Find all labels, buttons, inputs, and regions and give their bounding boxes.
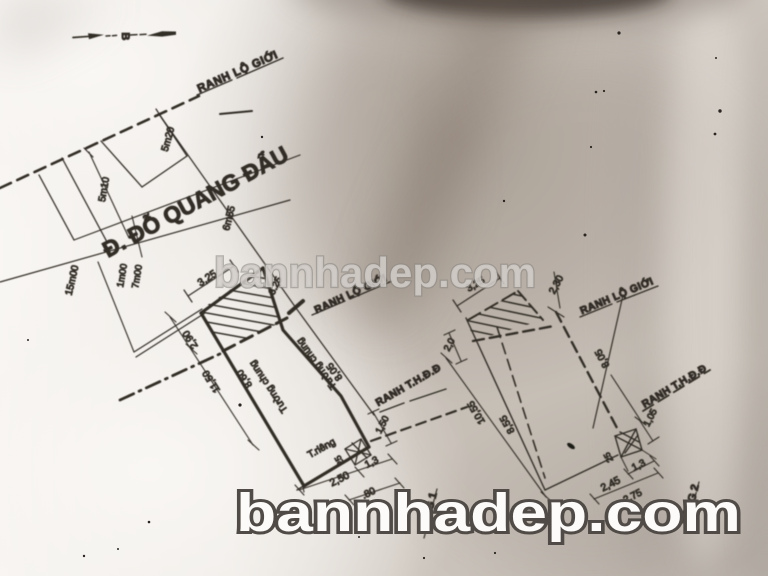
svg-text:bannhadep.com: bannhadep.com — [236, 483, 741, 543]
svg-text:B: B — [119, 32, 131, 40]
svg-text:bannhadep.com: bannhadep.com — [214, 249, 536, 296]
